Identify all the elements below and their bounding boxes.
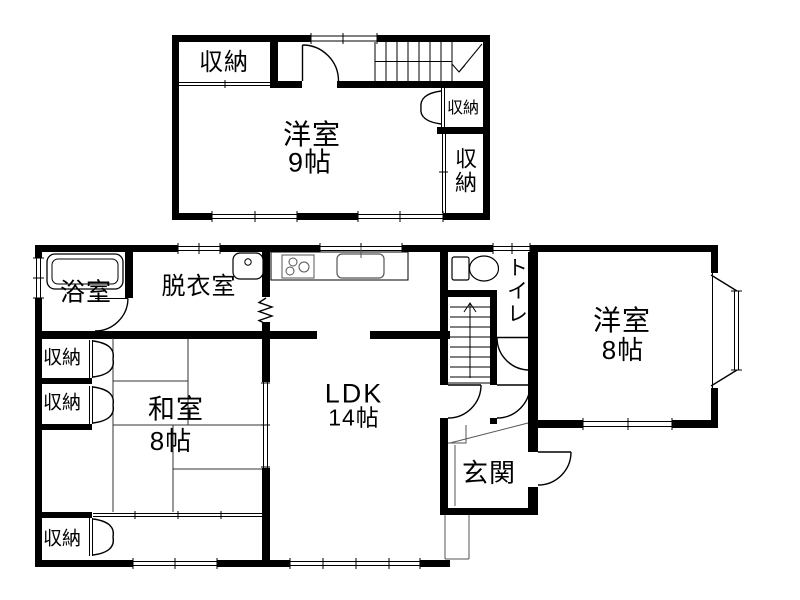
window-2f-south-left xyxy=(212,211,297,222)
door-hall-west xyxy=(448,385,481,418)
room-label-closet-middle: 収納 xyxy=(43,394,81,413)
bay-window-1f xyxy=(711,273,742,388)
door-toilet xyxy=(497,338,530,371)
kitchen-counter xyxy=(271,247,408,280)
window-1f-veranda xyxy=(133,558,217,569)
room-label-toilet: トイレ xyxy=(506,257,527,326)
porch-step xyxy=(445,515,469,559)
sliding-door-washitsu-ldk xyxy=(261,382,270,468)
closet-1f-middle xyxy=(90,386,114,424)
door-hall-east xyxy=(497,385,530,418)
closet-1f-lower xyxy=(90,518,114,556)
floor-1f-plan xyxy=(33,243,742,569)
floorplan-canvas: 収納 洋室 9帖 収納 収納 浴室 脱衣室 トイレ 収納 収納 和室 8帖 LD… xyxy=(0,0,800,600)
room-label-japanese-room-size: 8帖 xyxy=(150,428,192,454)
room-label-japanese-room: 和室 xyxy=(148,397,204,424)
stairs-1f xyxy=(448,303,490,383)
room-label-ldk: LDK xyxy=(325,381,384,408)
room-label-2f-closet-topleft: 収納 xyxy=(199,51,249,75)
room-label-2f-closet-small: 収納 xyxy=(447,101,479,117)
window-2f-north xyxy=(311,33,377,44)
tatami-grid xyxy=(113,338,262,512)
room-label-dressing-room: 脱衣室 xyxy=(162,275,237,299)
door-entrance xyxy=(538,452,571,485)
floorplan-linework xyxy=(0,0,800,600)
room-label-2f-closet-tall: 収納 xyxy=(453,147,475,195)
window-1f-ldk-south xyxy=(290,558,420,569)
door-2f-hall xyxy=(303,45,339,81)
wall-2f-closet-right xyxy=(270,35,278,88)
toilet-icon xyxy=(452,256,499,281)
sliding-door-washitsu-veranda xyxy=(93,511,262,519)
window-1f-toilet xyxy=(493,243,530,254)
room-label-2f-western-room-size: 9帖 xyxy=(288,150,332,177)
room-label-bathroom: 浴室 xyxy=(60,281,112,306)
window-1f-bath xyxy=(33,258,44,298)
room-label-closet-upper: 収納 xyxy=(43,349,81,368)
window-1f-dressing xyxy=(178,243,220,254)
window-1f-western-south xyxy=(583,418,672,430)
room-label-1f-western-room: 洋室 xyxy=(593,307,651,335)
room-label-ldk-size: 14帖 xyxy=(328,407,380,430)
room-label-closet-lower: 収納 xyxy=(43,530,81,549)
closet-1f-upper xyxy=(90,340,114,378)
closet-front-2f-topleft xyxy=(179,80,270,88)
room-label-entrance: 玄関 xyxy=(462,460,516,486)
room-label-2f-western-room: 洋室 xyxy=(283,121,341,149)
closet-2f-tall xyxy=(439,134,448,213)
washstand-icon xyxy=(233,253,263,279)
room-label-1f-western-room-size: 8帖 xyxy=(602,337,644,363)
stairs-2f xyxy=(375,42,482,81)
accordion-door xyxy=(259,298,272,324)
window-2f-south-right xyxy=(358,211,443,222)
closet-2f-small xyxy=(421,88,445,127)
